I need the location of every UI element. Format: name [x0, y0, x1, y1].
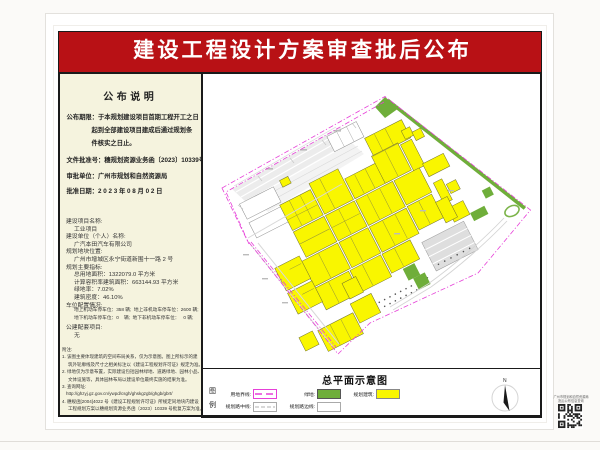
svg-text:N: N — [503, 378, 507, 384]
